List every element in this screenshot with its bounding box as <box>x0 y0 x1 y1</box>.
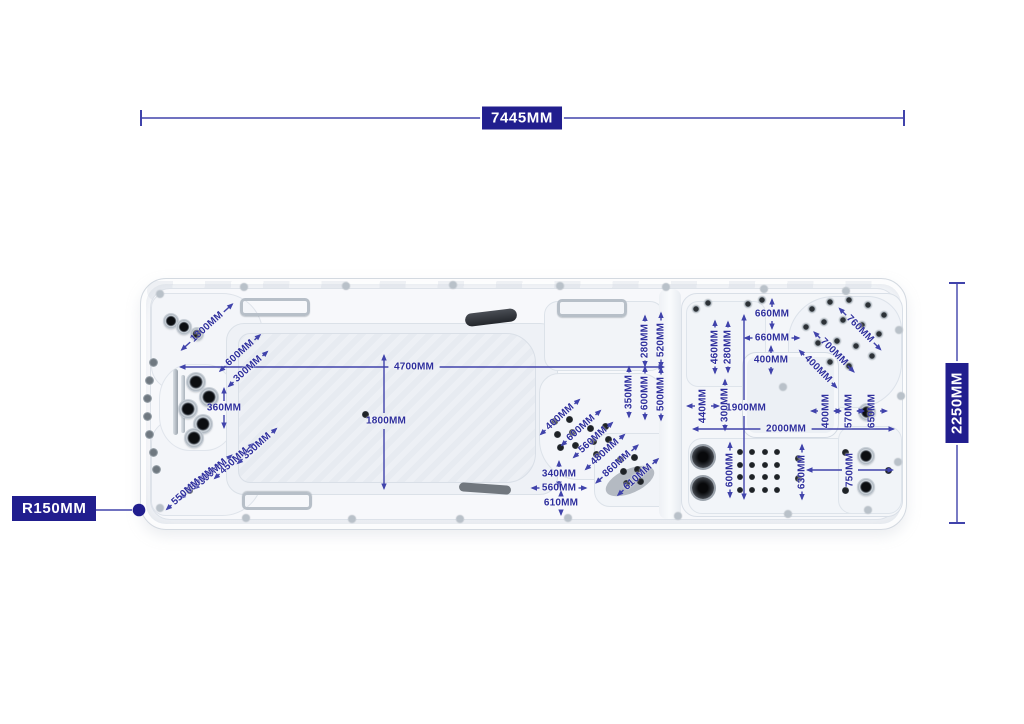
jet-nozzle <box>737 487 743 493</box>
jet-nozzle <box>758 296 766 304</box>
jet-nozzle <box>820 318 828 326</box>
jet-nozzle <box>551 418 558 425</box>
jet-nozzle <box>692 305 700 313</box>
jet-nozzle <box>868 352 876 360</box>
jet-nozzle <box>187 373 205 391</box>
grab-rail-top-left <box>240 298 310 316</box>
jet-nozzle <box>634 466 641 473</box>
rim-bolt <box>674 512 682 520</box>
swim-jet-rail <box>173 369 178 435</box>
jet-nozzle <box>590 438 597 445</box>
rim-bolt <box>449 281 457 289</box>
footwell <box>742 352 839 438</box>
jet-nozzle <box>164 314 178 328</box>
jet-nozzle <box>833 337 841 345</box>
jet-nozzle <box>749 462 755 468</box>
jet-nozzle <box>762 449 768 455</box>
rim-bolt <box>342 282 350 290</box>
jet-nozzle <box>774 449 780 455</box>
jet-nozzle <box>858 479 874 495</box>
rim-bolt <box>242 514 250 522</box>
seat-right <box>838 426 902 514</box>
jet-nozzle <box>637 478 644 485</box>
swim-spa-shell <box>140 278 907 530</box>
jet-nozzle <box>623 480 630 487</box>
jet-nozzle <box>737 449 743 455</box>
jet-nozzle <box>845 362 853 370</box>
rim-bolt <box>240 283 248 291</box>
dimension-2250mm: 2250MM <box>946 363 969 443</box>
swim-lane-floor <box>238 333 536 483</box>
jet-nozzle <box>774 462 780 468</box>
jet-nozzle <box>572 442 579 449</box>
jet-nozzle <box>864 301 872 309</box>
rim-bolt <box>784 510 792 518</box>
jet-nozzle <box>744 300 752 308</box>
jet-nozzle <box>362 411 369 418</box>
jet-nozzle <box>845 296 853 304</box>
jet-nozzle <box>145 430 154 439</box>
jet-nozzle <box>826 298 834 306</box>
jet-nozzle <box>149 448 158 457</box>
jet-nozzle <box>602 423 609 430</box>
jet-nozzle <box>152 465 161 474</box>
jet-nozzle <box>631 454 638 461</box>
jet-nozzle <box>149 358 158 367</box>
grab-rail-top-middle <box>557 299 627 317</box>
jet-nozzle <box>179 400 197 418</box>
rim-bolt <box>842 287 850 295</box>
jet-nozzle <box>185 429 203 447</box>
jet-nozzle <box>704 299 712 307</box>
jet-nozzle <box>880 311 888 319</box>
spa-dimension-diagram: 7445MM2250MM4700MM1800MM1900MM2000MM360M… <box>0 0 1024 724</box>
jet-nozzle <box>802 323 810 331</box>
jet-nozzle <box>762 474 768 480</box>
jet-nozzle <box>839 316 847 324</box>
jet-nozzle <box>566 416 573 423</box>
rim-bolt <box>156 290 164 298</box>
speaker-icon <box>692 446 714 468</box>
speaker-icon <box>692 477 714 499</box>
jet-nozzle <box>859 404 875 420</box>
dimension-7445mm: 7445MM <box>482 107 562 130</box>
jet-nozzle <box>737 462 743 468</box>
jet-nozzle <box>808 305 816 313</box>
jet-nozzle <box>620 468 627 475</box>
jet-nozzle <box>858 448 874 464</box>
jet-nozzle <box>858 321 866 329</box>
jet-nozzle <box>587 425 594 432</box>
rim-bolt <box>556 282 564 290</box>
jet-nozzle <box>593 451 600 458</box>
jet-nozzle <box>762 487 768 493</box>
section-partition <box>659 289 681 519</box>
rim-bolt <box>348 515 356 523</box>
rim-bolt <box>895 326 903 334</box>
grab-rail-bottom <box>242 492 312 510</box>
jet-nozzle <box>605 436 612 443</box>
jet-nozzle <box>842 449 849 456</box>
jet-nozzle <box>145 376 154 385</box>
jet-nozzle <box>842 487 849 494</box>
jet-nozzle <box>774 487 780 493</box>
jet-nozzle <box>795 475 802 482</box>
corner-radius-callout: R150MM <box>12 496 96 521</box>
rim-bolt <box>564 514 572 522</box>
jet-nozzle <box>875 330 883 338</box>
rim-bolt <box>156 504 164 512</box>
rim-bolt <box>897 392 905 400</box>
jet-nozzle <box>200 388 218 406</box>
jet-nozzle <box>554 431 561 438</box>
jet-nozzle <box>186 487 193 494</box>
jet-nozzle <box>191 328 203 340</box>
rim-bolt <box>760 285 768 293</box>
jet-nozzle <box>569 429 576 436</box>
rim-bolt <box>894 458 902 466</box>
jet-nozzle <box>795 455 802 462</box>
jet-nozzle <box>762 462 768 468</box>
jet-nozzle <box>617 456 624 463</box>
jet-nozzle <box>143 394 152 403</box>
rim-bolt <box>779 383 787 391</box>
jet-nozzle <box>557 444 564 451</box>
rim-bolt <box>864 506 872 514</box>
rim-bolt <box>456 515 464 523</box>
jet-nozzle <box>826 358 834 366</box>
jet-nozzle <box>814 339 822 347</box>
jet-nozzle <box>177 320 191 334</box>
jet-nozzle <box>143 412 152 421</box>
jet-nozzle <box>852 342 860 350</box>
jet-nozzle <box>885 467 892 474</box>
rim-bolt <box>662 283 670 291</box>
